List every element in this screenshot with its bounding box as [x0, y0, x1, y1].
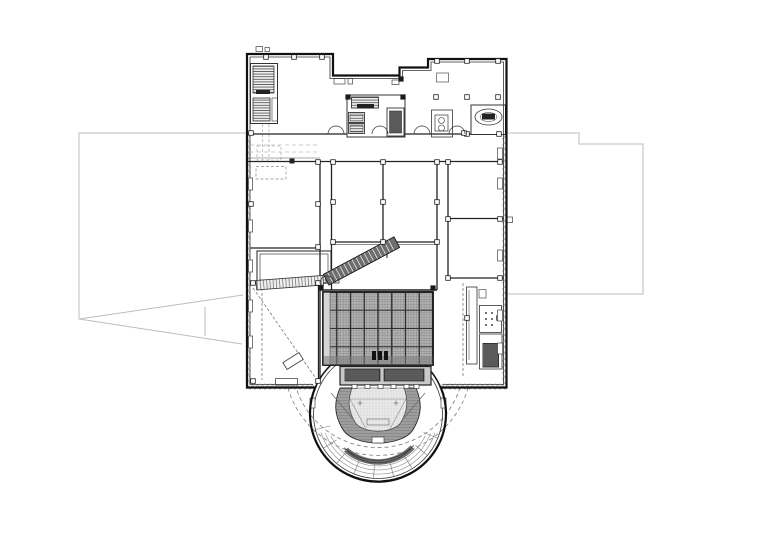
- spiral-stair-core: [482, 114, 495, 120]
- stair-dark-bar: [357, 104, 374, 109]
- stage-fly-grid: [323, 292, 433, 365]
- site-boundary-left: [79, 133, 246, 319]
- grid-hoist-marks: [372, 351, 388, 360]
- dark-marker: [290, 159, 295, 164]
- furniture-bench: [276, 379, 298, 386]
- service-elevator: [483, 344, 499, 368]
- machinery-block-left: [345, 369, 380, 381]
- floor-plan-canvas: Architectural floor plan — theatre level…: [0, 0, 780, 551]
- central-core: [347, 95, 405, 137]
- stair-landing-bar: [256, 90, 270, 94]
- stair-flight-upper: [253, 66, 274, 93]
- orchestra-floor: [349, 388, 406, 431]
- site-boundary-right: [508, 133, 643, 294]
- proscenium-band: [340, 367, 431, 389]
- plan-sheet: Architectural floor plan — theatre level…: [0, 0, 780, 551]
- stair-flight-lower: [253, 98, 270, 121]
- site-wedge: [79, 295, 243, 344]
- machinery-block-right: [384, 369, 424, 381]
